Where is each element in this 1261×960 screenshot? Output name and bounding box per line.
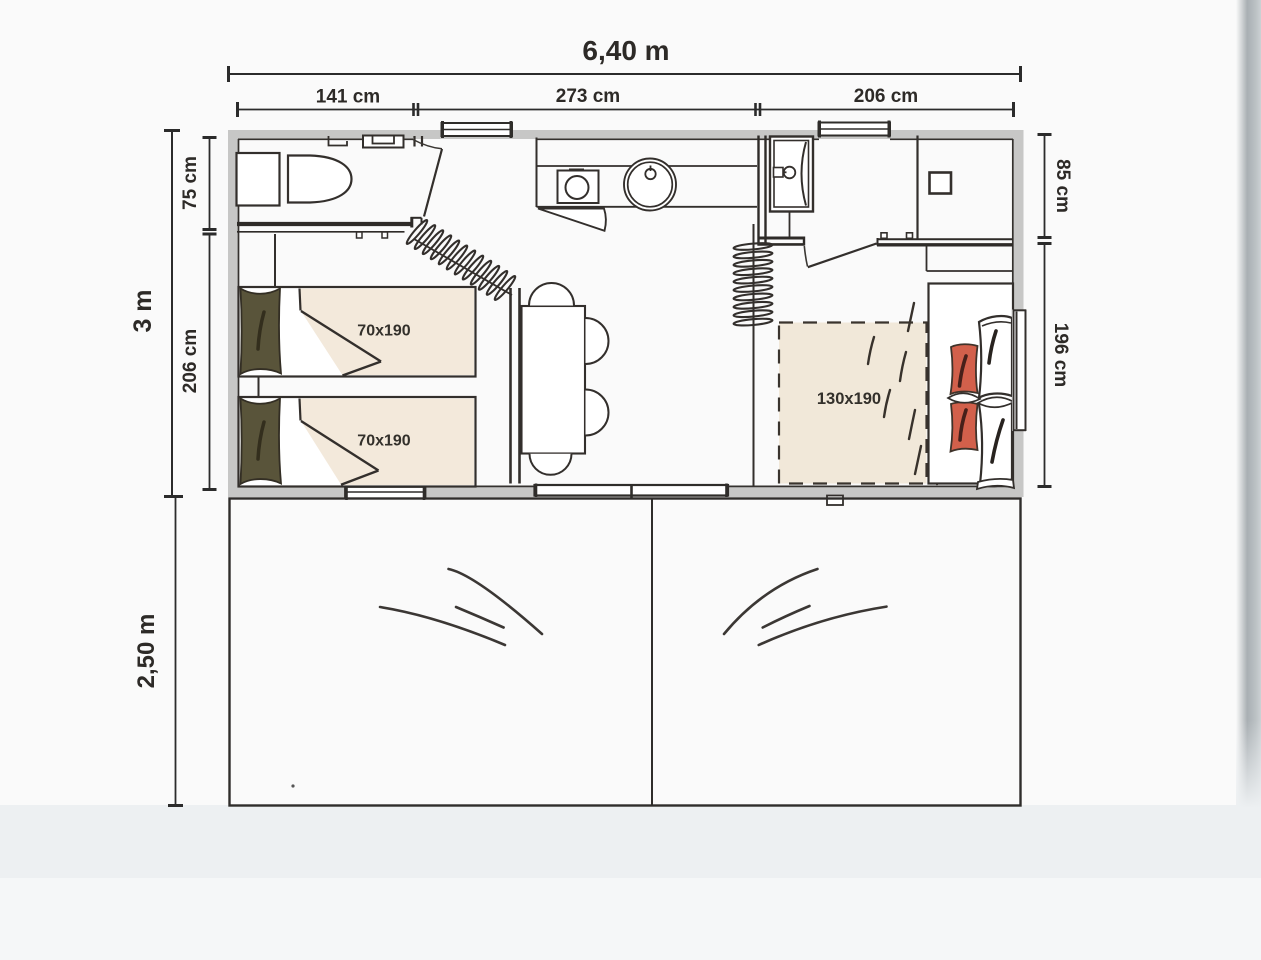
svg-text:3 m: 3 m: [129, 289, 157, 332]
svg-text:70x190: 70x190: [357, 433, 410, 450]
svg-text:196 cm: 196 cm: [1050, 323, 1071, 387]
svg-text:130x190: 130x190: [817, 390, 881, 408]
svg-text:6,40 m: 6,40 m: [582, 35, 669, 66]
svg-text:75 cm: 75 cm: [180, 156, 201, 210]
svg-text:85 cm: 85 cm: [1052, 159, 1073, 213]
svg-text:206 cm: 206 cm: [180, 329, 201, 393]
svg-text:273 cm: 273 cm: [556, 86, 620, 107]
svg-text:141 cm: 141 cm: [316, 87, 380, 108]
svg-text:70x190: 70x190: [357, 323, 410, 340]
svg-text:206 cm: 206 cm: [854, 86, 918, 107]
svg-text:2,50 m: 2,50 m: [133, 614, 160, 689]
